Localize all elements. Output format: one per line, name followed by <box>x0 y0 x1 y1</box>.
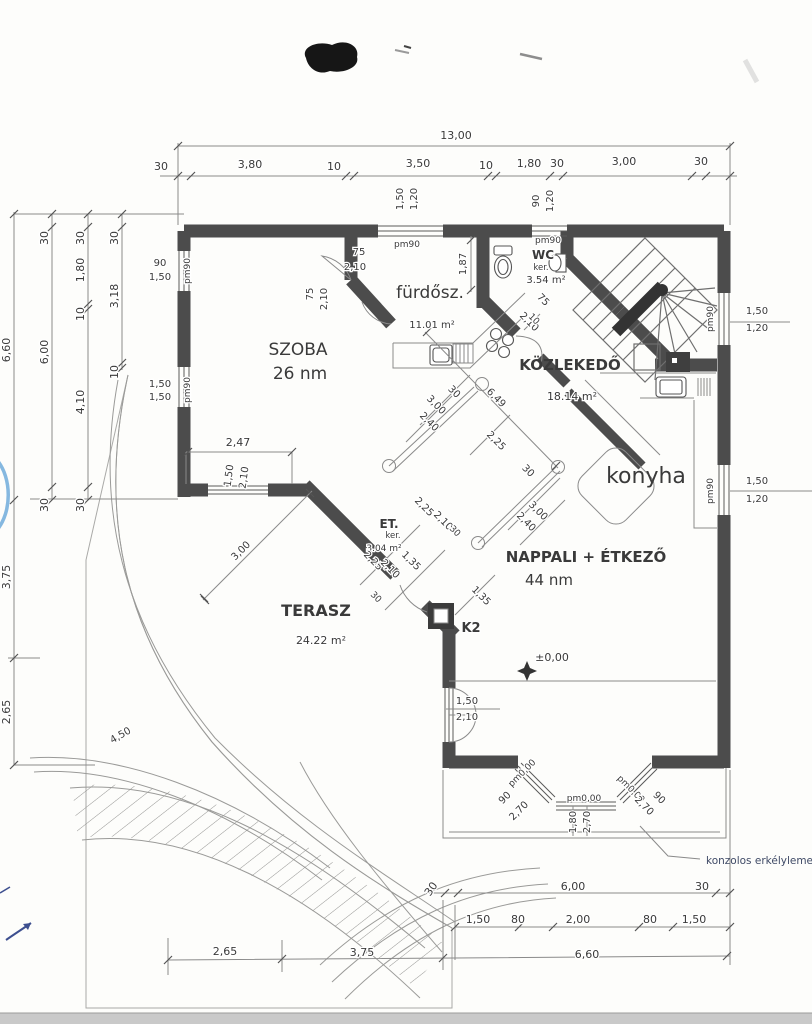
radiator-icon <box>453 344 473 363</box>
dim-label: 30 <box>519 463 536 480</box>
dim-label: 6,60 <box>0 338 13 363</box>
window-size-label: 90 <box>497 790 514 807</box>
room-type-eloter: ker. <box>385 531 400 541</box>
smudge <box>395 50 409 53</box>
parapet-label: pm0,00 <box>567 794 602 804</box>
dim-label: 30 <box>74 231 87 245</box>
door-size-label: 1,50 <box>456 696 478 707</box>
dim-label: 30 <box>38 498 51 512</box>
dim-label: 6,00 <box>561 880 586 893</box>
parapet-label: pm90 <box>394 240 420 250</box>
dim-label: 10 <box>74 307 87 321</box>
dim-label: 10 <box>479 159 493 172</box>
door-size-label: 75 <box>353 247 366 258</box>
room-area-terasz: 24.22 m² <box>296 634 346 647</box>
door-size-label: 75 <box>305 288 316 301</box>
dim-label: 3,18 <box>108 284 121 309</box>
dim-label: 1,35 <box>469 584 493 608</box>
windows <box>179 226 729 810</box>
stair-newel <box>656 284 668 296</box>
level-label: ±0,00 <box>535 651 569 664</box>
dim-label: 30 <box>368 590 383 605</box>
dim-label: 3,75 <box>350 946 375 959</box>
smudge <box>745 60 757 82</box>
window-size-label: 2,70 <box>507 799 531 823</box>
dim-label: 30 <box>154 160 168 173</box>
dim-label: 30 <box>38 231 51 245</box>
window-size-label: 2,70 <box>582 811 593 833</box>
room-area-furdoszoba: 11.01 m² <box>409 320 455 331</box>
dim-label: 1,50 <box>682 913 707 926</box>
window-size-label: 1,50 <box>395 188 406 210</box>
window-size-label: 1,20 <box>746 494 768 505</box>
dim-label: 6,00 <box>38 340 51 365</box>
window-size-label: 1,50 <box>746 476 768 487</box>
room-label-wc: WC <box>532 248 554 262</box>
floor-plan-scan: { "rooms": { "szoba": {"name":"SZOBA","a… <box>0 0 812 1024</box>
door-size-label: 75 <box>534 292 551 309</box>
blue-pen-tick <box>0 887 10 893</box>
parapet-label: pm90 <box>535 236 561 246</box>
window-size-label: 90 <box>531 195 542 208</box>
dim-label: 3,75 <box>0 565 13 590</box>
dim-label: 2,65 <box>0 700 13 725</box>
room-label-konyha: konyha <box>606 464 686 489</box>
parapet-label: pm90 <box>183 258 193 284</box>
room-area-nappali: 44 nm <box>525 571 573 589</box>
door-size-label: 2,10 <box>319 288 330 310</box>
window-size-label: 1,20 <box>545 190 556 212</box>
dim-label: 13,00 <box>440 129 472 142</box>
dim-label: 4,10 <box>74 390 87 415</box>
parapet-label: pm90 <box>183 377 193 403</box>
blue-pen-mark <box>0 460 8 530</box>
ink-blob <box>305 42 358 72</box>
window-size-label: 1,80 <box>568 811 579 833</box>
dim-label: 6,49 <box>484 386 508 410</box>
room-label-furdoszoba: fürdősz. <box>396 283 464 303</box>
floor-plan-canvas: 13,00 30 3,80 10 3,50 10 1,80 30 3,00 30… <box>0 0 812 1024</box>
dim-label: 30 <box>422 880 441 899</box>
dim-label: 3,50 <box>406 157 431 170</box>
dim-label: 30 <box>695 880 709 893</box>
dim-label: 30 <box>74 498 87 512</box>
room-label-szoba: SZOBA <box>268 340 327 360</box>
dim-label: 10 <box>327 160 341 173</box>
chimney-label-k2: K2 <box>461 621 480 636</box>
dim-label: 1,80 <box>517 157 542 170</box>
scan-artifacts <box>0 42 812 1024</box>
room-label-kozlekedo: KÖZLEKEDŐ <box>519 354 620 374</box>
parapet-label: pm90 <box>706 306 716 332</box>
window-size-label: 1,50 <box>149 379 171 390</box>
smudge <box>520 54 542 59</box>
room-type-wc: ker. <box>533 263 548 273</box>
window-size-label: 1,20 <box>409 188 420 210</box>
dim-label: 30 <box>550 157 564 170</box>
dim-label: 6,60 <box>575 948 600 961</box>
scan-edge-bar <box>0 1013 812 1024</box>
window-size-label: 1,50 <box>149 392 171 403</box>
window-size-label: 90 <box>154 258 167 269</box>
smudge <box>404 46 411 48</box>
dim-label: 1,35 <box>399 549 423 573</box>
chimney-k2 <box>428 603 454 629</box>
dim-label: 30 <box>445 384 462 401</box>
room-label-nappali: NAPPALI + ÉTKEZŐ <box>506 546 667 566</box>
dim-label: 3,00 <box>229 539 253 563</box>
dim-label: 4,50 <box>108 726 133 747</box>
dim-label: 80 <box>511 913 525 926</box>
level-marker <box>517 661 537 681</box>
room-area-kozlekedo: 18.14 m² <box>547 390 597 403</box>
balcony-note: konzolos erkélylemez! <box>706 855 812 867</box>
room-label-eloter: ET. <box>379 517 398 531</box>
dim-label: 80 <box>643 913 657 926</box>
window-size-label: 90 <box>650 790 667 807</box>
window-size-label: 1,50 <box>746 306 768 317</box>
dim-label: 3,80 <box>238 158 263 171</box>
dim-label: 2,47 <box>226 436 251 449</box>
dim-label: 1,80 <box>74 258 87 283</box>
room-area-szoba: 26 nm <box>273 364 327 384</box>
dim-label: 1,50 <box>466 913 491 926</box>
dim-label: 2,25 <box>484 429 508 453</box>
door-size-label: 2,10 <box>344 262 366 273</box>
dim-label: 1,87 <box>458 253 469 275</box>
dim-label: 3,00 <box>612 155 637 168</box>
door-size-label: 2,10 <box>456 712 478 723</box>
window-size-label: 1,50 <box>149 272 171 283</box>
dim-label: 2,65 <box>213 945 238 958</box>
dim-label: 10 <box>108 365 121 379</box>
kitchen-counter <box>572 352 717 530</box>
toilet-icon <box>494 246 512 278</box>
room-label-terasz: TERASZ <box>281 601 351 620</box>
dim-label: 30 <box>694 155 708 168</box>
window-size-label: 1,20 <box>746 323 768 334</box>
parapet-label: pm90 <box>706 478 716 504</box>
window-size-label: 1,50 <box>223 464 237 488</box>
dim-label: 2,00 <box>566 913 591 926</box>
room-area-wc: 3.54 m² <box>526 275 565 286</box>
dim-label: 30 <box>108 231 121 245</box>
